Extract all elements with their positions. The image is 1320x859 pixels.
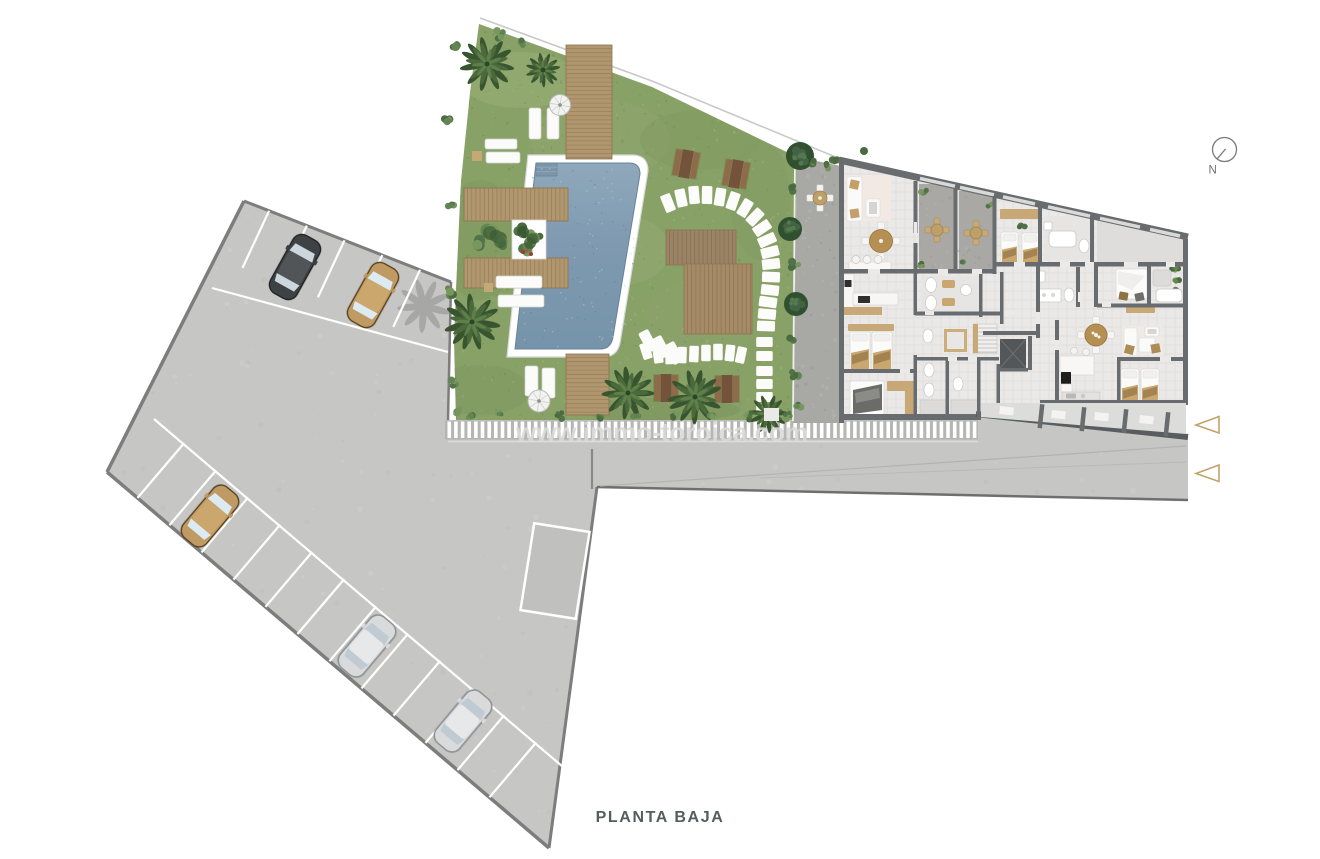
svg-text:PLANTA BAJA: PLANTA BAJA bbox=[596, 809, 725, 826]
svg-text:www.immo-toroica.com: www.immo-toroica.com bbox=[515, 417, 808, 447]
svg-text:N: N bbox=[1209, 165, 1217, 177]
